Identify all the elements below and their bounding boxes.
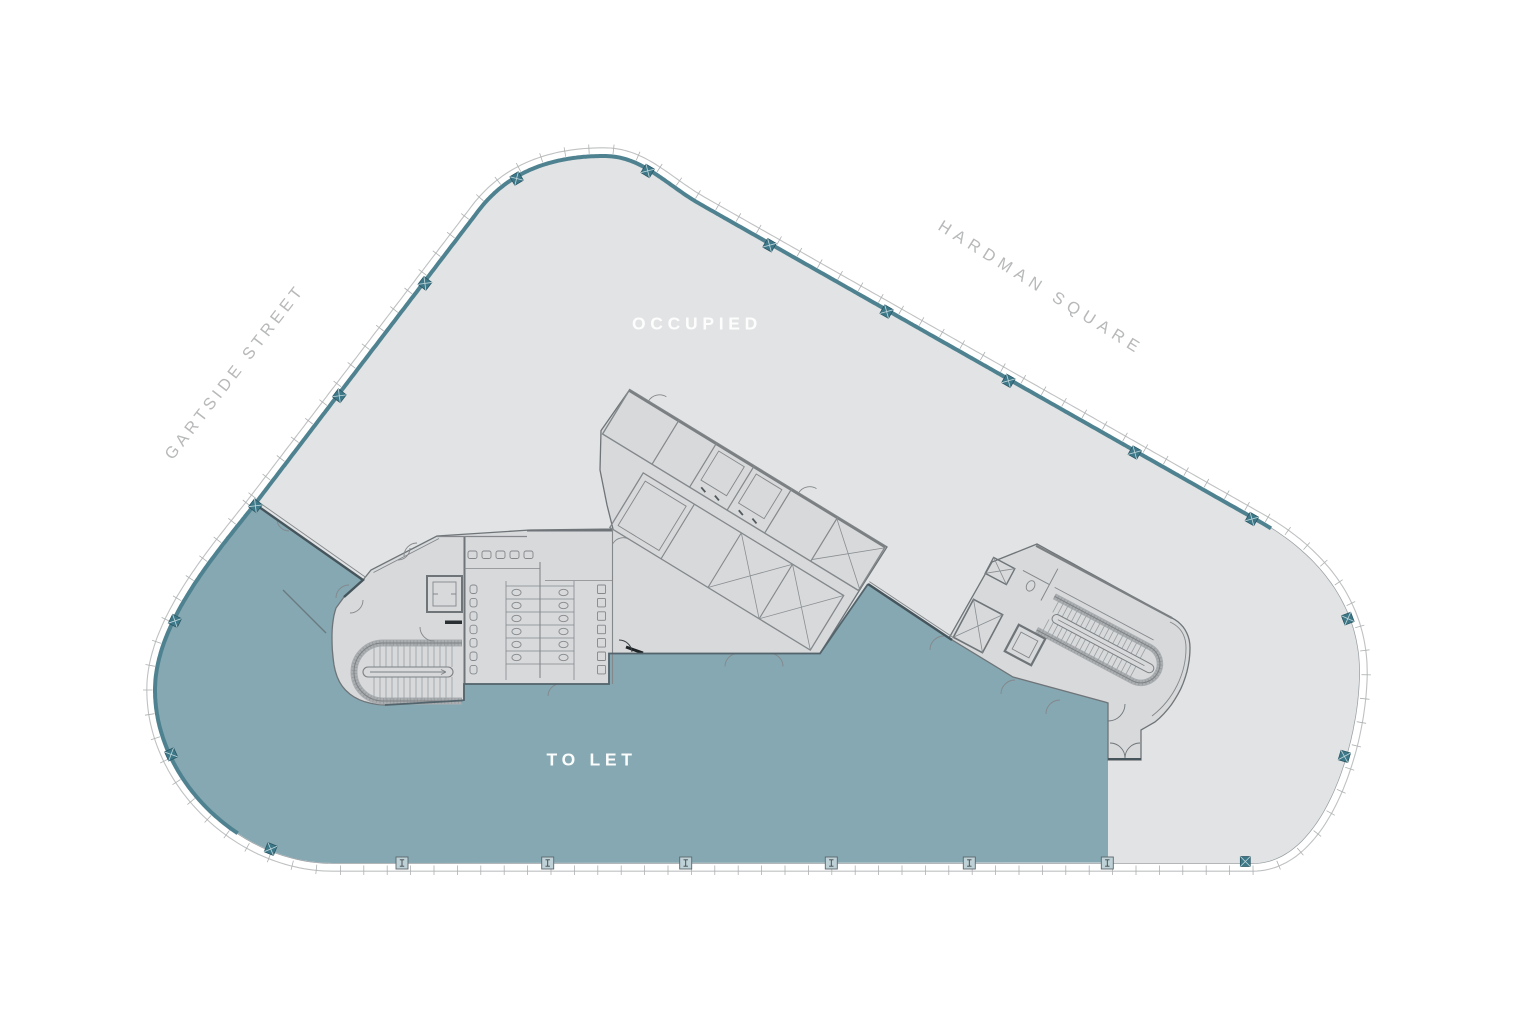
svg-text:OCCUPIED: OCCUPIED — [632, 314, 762, 334]
svg-text:HARDMAN SQUARE: HARDMAN SQUARE — [935, 217, 1147, 359]
svg-text:TO LET: TO LET — [547, 750, 637, 770]
svg-text:GARTSIDE STREET: GARTSIDE STREET — [161, 281, 308, 463]
